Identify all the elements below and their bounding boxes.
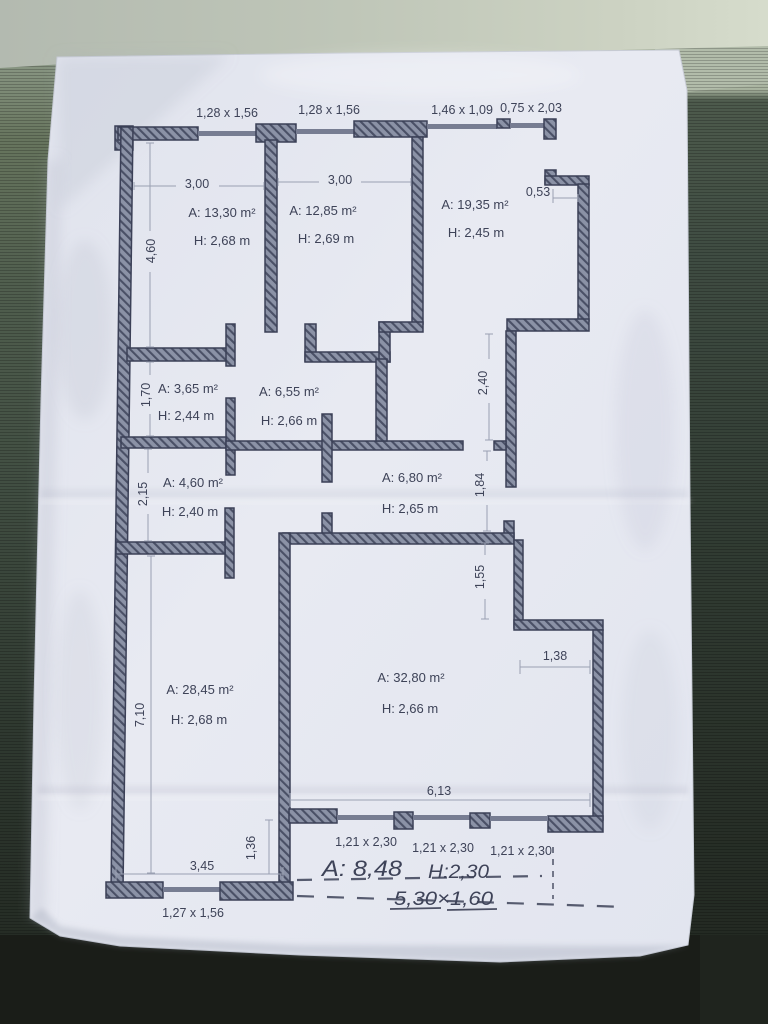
svg-text:A: 32,80 m²: A: 32,80 m² xyxy=(377,670,445,685)
svg-text:3,00: 3,00 xyxy=(185,177,209,191)
svg-text:H: 2,44 m: H: 2,44 m xyxy=(158,408,214,423)
svg-text:1,46 x 1,09: 1,46 x 1,09 xyxy=(431,103,493,117)
svg-text:H: 2,66 m: H: 2,66 m xyxy=(261,413,317,428)
svg-text:2,40: 2,40 xyxy=(476,371,490,395)
svg-text:2,15: 2,15 xyxy=(136,482,150,506)
svg-text:A: 8,48: A: 8,48 xyxy=(320,856,403,881)
svg-text:A: 19,35 m²: A: 19,35 m² xyxy=(441,197,509,212)
svg-text:A: 3,65 m²: A: 3,65 m² xyxy=(158,381,219,396)
svg-text:1,21 x 2,30: 1,21 x 2,30 xyxy=(490,844,552,858)
svg-text:1,27 x 1,56: 1,27 x 1,56 xyxy=(162,906,224,920)
svg-text:H: 2,40 m: H: 2,40 m xyxy=(162,504,218,519)
svg-text:1,55: 1,55 xyxy=(473,565,487,589)
svg-text:1,28 x 1,56: 1,28 x 1,56 xyxy=(196,106,258,120)
svg-text:1,70: 1,70 xyxy=(139,383,153,407)
svg-text:7,10: 7,10 xyxy=(133,703,147,727)
svg-text:A: 12,85 m²: A: 12,85 m² xyxy=(289,203,357,218)
svg-text:H: 2,68 m: H: 2,68 m xyxy=(194,233,250,248)
svg-text:H:2,30: H:2,30 xyxy=(428,862,489,883)
svg-text:H: 2,65 m: H: 2,65 m xyxy=(382,501,438,516)
svg-text:1,38: 1,38 xyxy=(543,649,567,663)
svg-text:A: 6,55 m²: A: 6,55 m² xyxy=(259,384,320,399)
svg-text:A: 28,45 m²: A: 28,45 m² xyxy=(166,682,234,697)
svg-text:4,60: 4,60 xyxy=(144,239,158,263)
svg-text:3,45: 3,45 xyxy=(190,859,214,873)
svg-text:1,21 x 2,30: 1,21 x 2,30 xyxy=(412,841,474,855)
svg-text:3,00: 3,00 xyxy=(328,173,352,187)
svg-text:0,53: 0,53 xyxy=(526,185,550,199)
svg-text:H: 2,66 m: H: 2,66 m xyxy=(382,701,438,716)
svg-text:1,84: 1,84 xyxy=(473,473,487,497)
svg-text:H: 2,45 m: H: 2,45 m xyxy=(448,225,504,240)
svg-text:A: 4,60 m²: A: 4,60 m² xyxy=(163,475,224,490)
svg-text:1,21 x 2,30: 1,21 x 2,30 xyxy=(335,835,397,849)
svg-text:5,30×1,60: 5,30×1,60 xyxy=(394,888,493,910)
svg-text:H: 2,69 m: H: 2,69 m xyxy=(298,231,354,246)
svg-text:A: 13,30 m²: A: 13,30 m² xyxy=(188,205,256,220)
svg-text:6,13: 6,13 xyxy=(427,784,451,798)
svg-text:0,75 x 2,03: 0,75 x 2,03 xyxy=(500,101,562,115)
svg-text:1,28 x 1,56: 1,28 x 1,56 xyxy=(298,103,360,117)
svg-text:A: 6,80 m²: A: 6,80 m² xyxy=(382,470,443,485)
svg-text:H: 2,68 m: H: 2,68 m xyxy=(171,712,227,727)
svg-text:1,36: 1,36 xyxy=(244,836,258,860)
